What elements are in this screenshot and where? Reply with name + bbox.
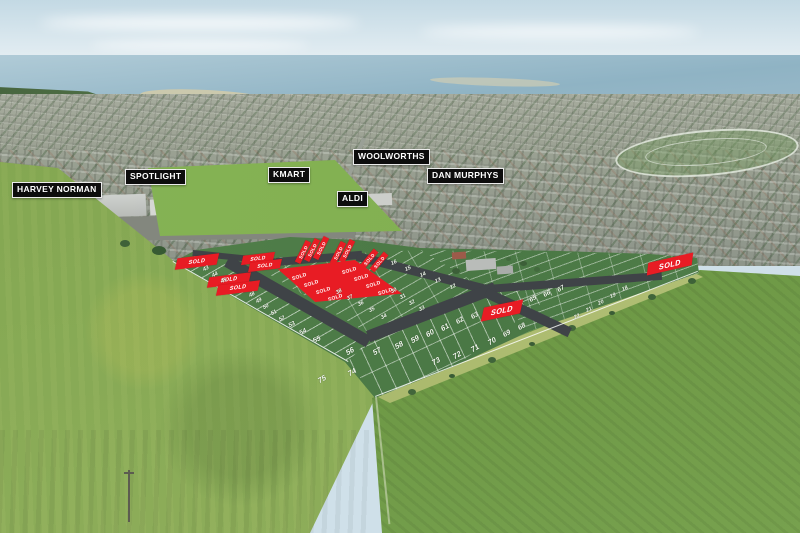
store-label-aldi: ALDI (337, 191, 368, 207)
store-label-kmart: KMART (268, 167, 310, 183)
store-label-spotlight: SPOTLIGHT (125, 169, 186, 185)
store-label-dan-murphys: DAN MURPHYS (427, 168, 504, 184)
aerial-estate-photo: SOLDSOLDSOLDSOLDSOLDSOLDSOLDSOLDSOLDSOLD… (0, 0, 800, 533)
store-label-harvey-norman: HARVEY NORMAN (12, 182, 102, 198)
store-label-woolworths: WOOLWORTHS (353, 149, 430, 165)
store-labels-layer: HARVEY NORMANSPOTLIGHTKMARTWOOLWORTHSDAN… (0, 0, 800, 533)
